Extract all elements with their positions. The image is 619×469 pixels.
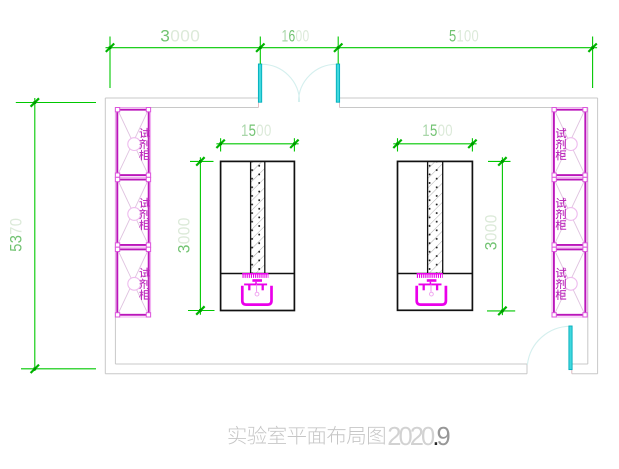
svg-text:1600: 1600 <box>282 27 310 46</box>
svg-text:1500: 1500 <box>422 121 453 140</box>
svg-text:3000: 3000 <box>481 214 500 250</box>
svg-text:1500: 1500 <box>241 121 272 140</box>
svg-text:5100: 5100 <box>449 27 479 46</box>
svg-text:3000: 3000 <box>160 27 200 46</box>
svg-text:2020.9: 2020.9 <box>387 423 449 451</box>
svg-text:5370: 5370 <box>7 218 26 252</box>
svg-text:3000: 3000 <box>175 217 194 253</box>
